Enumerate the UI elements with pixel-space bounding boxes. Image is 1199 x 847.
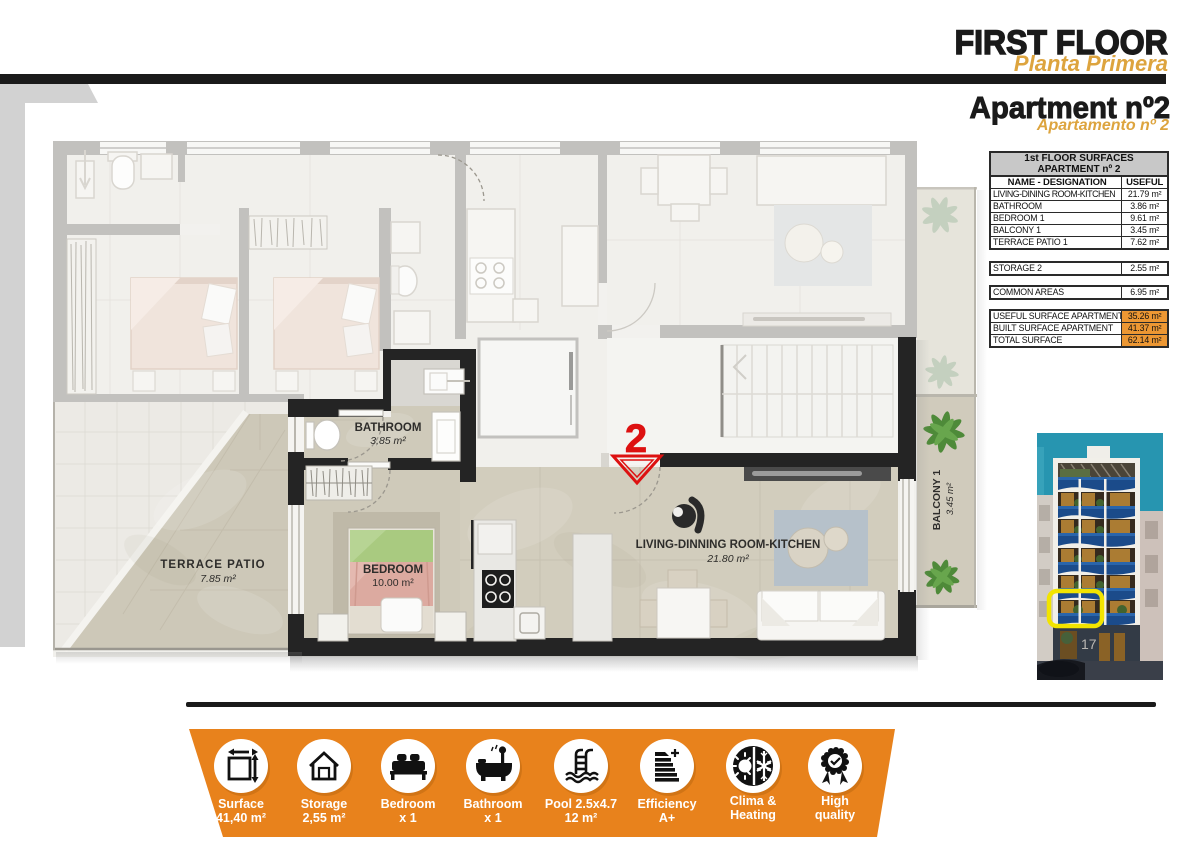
svg-text:x 1: x 1 — [484, 811, 501, 825]
svg-text:12 m²: 12 m² — [565, 811, 598, 825]
svg-text:Bathroom: Bathroom — [463, 797, 522, 811]
svg-text:Pool 2.5x4.7: Pool 2.5x4.7 — [545, 797, 617, 811]
svg-text:2,55 m²: 2,55 m² — [302, 811, 345, 825]
svg-text:Clima &: Clima & — [730, 794, 777, 808]
svg-text:Efficiency: Efficiency — [637, 797, 696, 811]
svg-text:High: High — [821, 794, 849, 808]
svg-text:17: 17 — [1081, 636, 1097, 652]
svg-text:Heating: Heating — [730, 808, 776, 822]
svg-text:x 1: x 1 — [399, 811, 416, 825]
svg-text:Bedroom: Bedroom — [381, 797, 436, 811]
svg-text:Surface: Surface — [218, 797, 264, 811]
svg-text:41,40 m²: 41,40 m² — [216, 811, 266, 825]
svg-text:Storage: Storage — [301, 797, 348, 811]
svg-text:A+: A+ — [659, 811, 675, 825]
svg-text:quality: quality — [815, 808, 855, 822]
